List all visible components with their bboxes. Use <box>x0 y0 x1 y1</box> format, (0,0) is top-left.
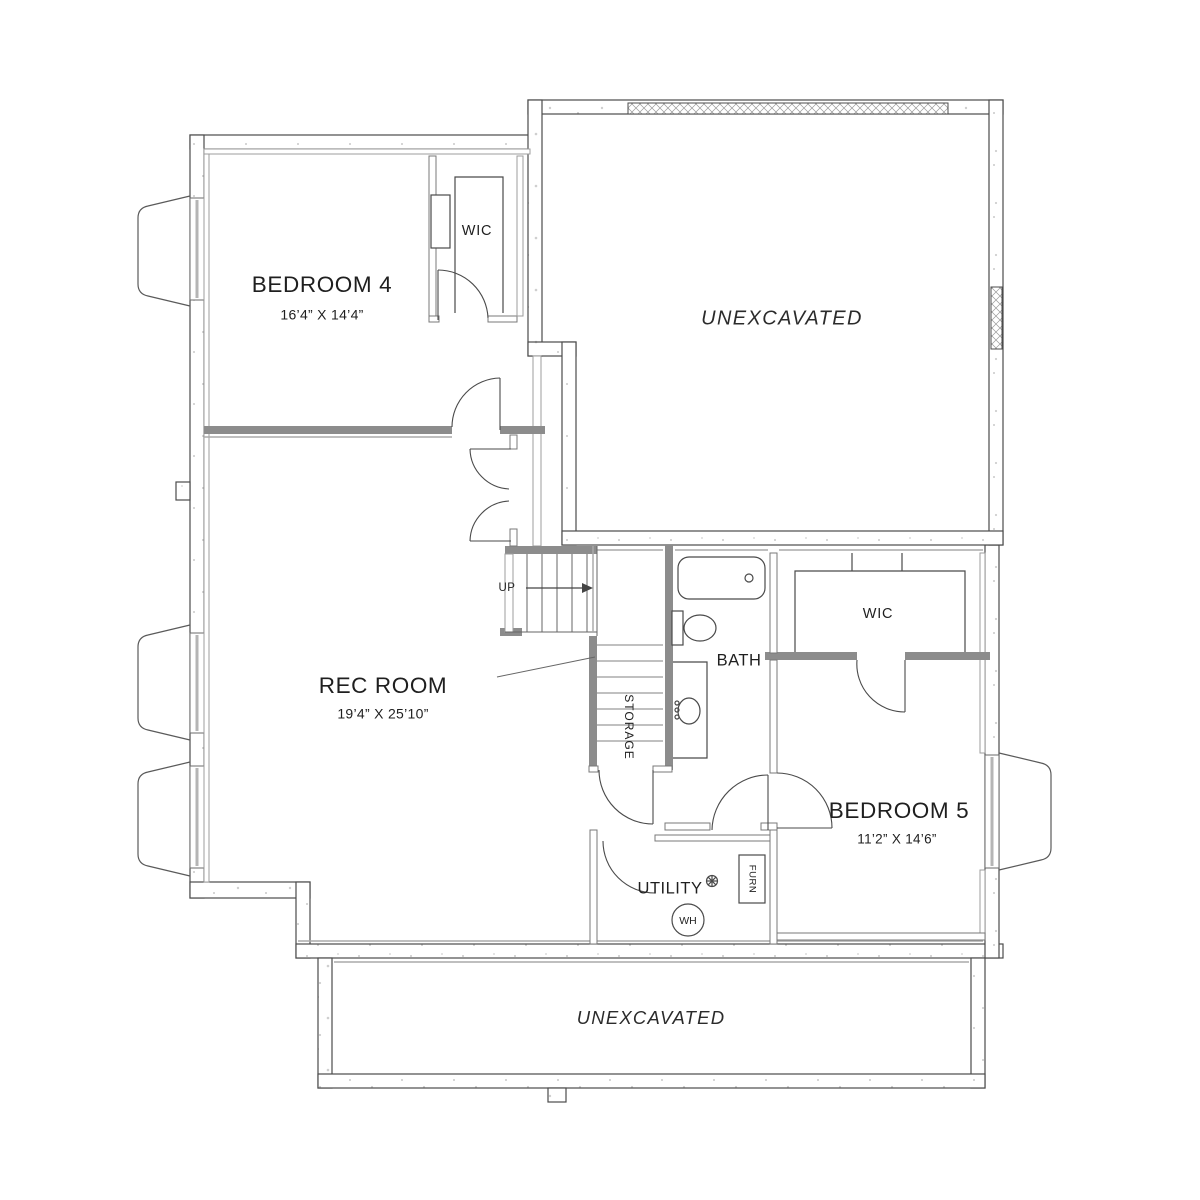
wall-west-pilaster <box>176 482 190 500</box>
label-storage: STORAGE <box>622 694 636 759</box>
furring-west <box>204 154 209 882</box>
stair-break-line <box>497 657 595 677</box>
label-furnace: FURN <box>746 865 757 893</box>
toilet-bowl <box>684 615 716 641</box>
window-well-recroom-2 <box>138 762 190 876</box>
up-direction-arrow <box>526 583 593 593</box>
window-well-bedroom5 <box>999 753 1051 870</box>
bearing-bedroom4-south-right <box>500 426 545 434</box>
door-recroom-french <box>470 449 511 541</box>
toilet <box>672 611 716 645</box>
wall-bedroom5-west-upper <box>770 660 777 773</box>
label-water-heater: WH <box>679 915 697 927</box>
faucet-dot <box>675 701 679 705</box>
wall-southwest-step-h <box>190 882 310 898</box>
wall-unexc2-tab <box>548 1088 566 1102</box>
floor-drain-icon <box>707 876 718 887</box>
wall-bedroom5-south <box>777 933 985 940</box>
door-bedroom5 <box>777 773 832 828</box>
door-wic-bedroom5 <box>857 660 905 712</box>
wall-bath-east <box>770 553 777 653</box>
door-storage <box>599 770 653 824</box>
hatched-wall-patch-right <box>991 287 1002 349</box>
bathtub <box>678 557 765 599</box>
wall-unexc2-west <box>318 958 332 1088</box>
window-well-recroom-1 <box>138 625 190 740</box>
bearing-wic5-south-left <box>765 652 857 660</box>
faucet-dot <box>675 708 679 712</box>
door-bath <box>712 775 768 830</box>
wall-bath-south-left <box>665 823 710 830</box>
wall-unexc2-south <box>318 1074 985 1088</box>
wall-landing-stub-bottom <box>510 529 517 546</box>
hatched-wall-patch-top <box>628 103 948 114</box>
label-bath: BATH <box>717 651 762 669</box>
wall-east <box>985 545 999 958</box>
wall-unexc-west-lower <box>562 342 576 545</box>
sink <box>678 698 700 724</box>
label-up: UP <box>499 582 516 594</box>
wall-unexc2-east <box>971 958 985 1088</box>
label-unexcavated-bottom: UNEXCAVATED <box>577 1007 726 1028</box>
bearing-bath-west <box>665 545 673 770</box>
floor-plan-drawing: BEDROOM 4 16’4” X 14’4” WIC UNEXCAVATED … <box>0 0 1200 1200</box>
label-rec-room: REC ROOM <box>319 673 448 698</box>
wall-landing-stub-top <box>510 435 517 449</box>
vanity <box>673 662 707 758</box>
label-bedroom4: BEDROOM 4 <box>252 272 392 297</box>
dims-rec-room: 19’4” X 25’10” <box>337 706 428 722</box>
foundation-walls <box>176 100 1003 1102</box>
label-unexcavated-top: UNEXCAVATED <box>701 307 863 329</box>
door-bedroom4 <box>452 378 500 430</box>
toilet-tank <box>672 611 683 645</box>
label-utility: UTILITY <box>638 879 703 897</box>
wall-south <box>296 944 1003 958</box>
dims-bedroom5: 11’2” X 14’6” <box>857 832 936 847</box>
label-bedroom5: BEDROOM 5 <box>829 798 969 823</box>
wall-storage-south-left <box>589 766 598 772</box>
wall-bedroom5-west-lower <box>770 828 777 944</box>
bearing-bedroom4-south-left <box>204 426 452 434</box>
wall-wic-top-east <box>517 156 523 316</box>
labels: BEDROOM 4 16’4” X 14’4” WIC UNEXCAVATED … <box>252 223 969 1028</box>
furring-north <box>204 149 530 154</box>
furring-landing <box>533 356 541 546</box>
stairs <box>497 546 663 741</box>
dims-bedroom4: 16’4” X 14’4” <box>280 307 363 323</box>
floor-plan-canvas: BEDROOM 4 16’4” X 14’4” WIC UNEXCAVATED … <box>0 0 1200 1200</box>
window-well-bedroom4 <box>138 196 190 306</box>
label-wic-top: WIC <box>462 223 493 239</box>
wall-unexc-south <box>562 531 1003 545</box>
wall-storage-south-right <box>653 766 672 772</box>
wic-top-shelf-box <box>431 195 450 248</box>
label-wic-bedroom5: WIC <box>863 606 894 622</box>
bearing-wic5-south-right <box>905 652 990 660</box>
wall-top-left <box>190 135 530 149</box>
bearing-stair-header <box>505 546 597 554</box>
furring-east-lower <box>980 870 985 933</box>
wall-utility-north <box>655 835 770 841</box>
wic-top-shelf-line <box>455 177 503 313</box>
wall-utility-west <box>590 830 597 944</box>
wall-wic-top-south-right <box>488 316 517 322</box>
wall-unexc-west-upper <box>528 100 542 356</box>
wall-bath-south-right <box>761 823 777 830</box>
faucet-dot <box>675 715 679 719</box>
bearing-storage-west <box>589 636 597 770</box>
door-wic-top <box>438 270 488 320</box>
